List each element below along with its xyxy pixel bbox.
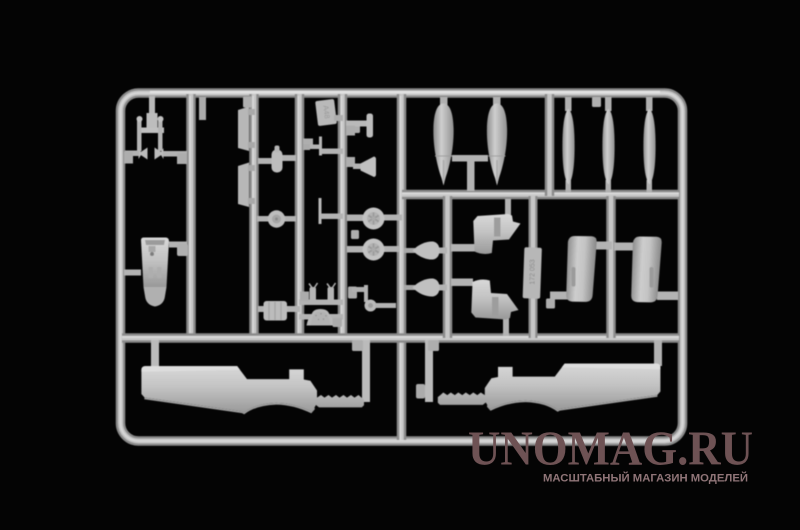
svg-text:UNOMAG.RU: UNOMAG.RU <box>468 421 753 476</box>
svg-text:172 053: 172 053 <box>530 259 537 284</box>
svg-text:МАСШТАБНЫЙ МАГАЗИН МОДЕЛЕЙ: МАСШТАБНЫЙ МАГАЗИН МОДЕЛЕЙ <box>543 472 748 485</box>
svg-text:A48: A48 <box>321 105 332 119</box>
